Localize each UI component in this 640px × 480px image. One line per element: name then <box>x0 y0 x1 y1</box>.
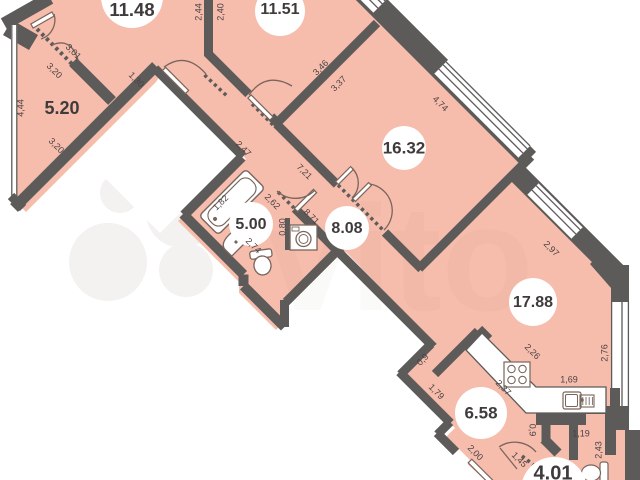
svg-text:5.20: 5.20 <box>44 98 79 118</box>
svg-text:16.32: 16.32 <box>383 138 426 157</box>
svg-text:1,69: 1,69 <box>560 374 578 384</box>
svg-text:vito: vito <box>267 174 534 342</box>
svg-text:0,9: 0,9 <box>528 424 538 437</box>
svg-text:0,80: 0,80 <box>277 218 287 236</box>
svg-text:4,44: 4,44 <box>15 99 25 117</box>
svg-text:11.51: 11.51 <box>260 1 299 18</box>
svg-text:5.00: 5.00 <box>235 216 266 233</box>
svg-text:11.48: 11.48 <box>109 0 154 20</box>
svg-text:17.88: 17.88 <box>513 294 553 311</box>
svg-text:2,44: 2,44 <box>193 3 203 21</box>
svg-text:2,43: 2,43 <box>593 441 603 459</box>
svg-text:2,76: 2,76 <box>599 344 609 362</box>
svg-text:6.58: 6.58 <box>464 403 497 422</box>
svg-text:2,40: 2,40 <box>215 3 225 21</box>
svg-text:1,19: 1,19 <box>572 428 590 438</box>
svg-text:4.01: 4.01 <box>534 462 573 480</box>
svg-text:8.08: 8.08 <box>331 220 362 237</box>
